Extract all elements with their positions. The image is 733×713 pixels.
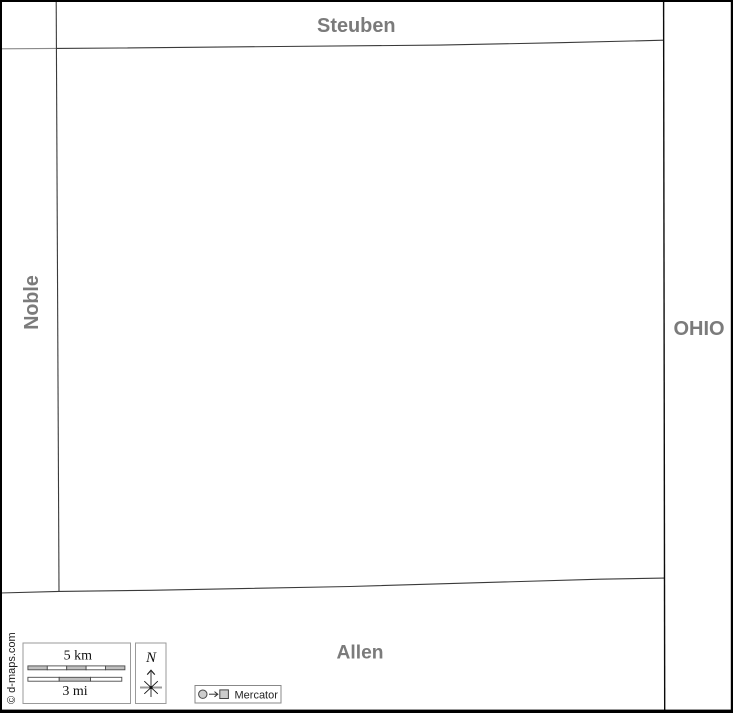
svg-text:Steuben: Steuben xyxy=(317,15,396,37)
svg-text:Allen: Allen xyxy=(337,642,384,663)
svg-text:Mercator: Mercator xyxy=(235,689,279,701)
svg-text:© d-maps.com: © d-maps.com xyxy=(6,632,18,704)
svg-text:3 mi: 3 mi xyxy=(62,684,87,699)
svg-text:OHIO: OHIO xyxy=(673,318,724,340)
svg-text:5 km: 5 km xyxy=(64,649,93,664)
svg-text:N: N xyxy=(145,650,157,666)
svg-text:Noble: Noble xyxy=(21,275,43,330)
